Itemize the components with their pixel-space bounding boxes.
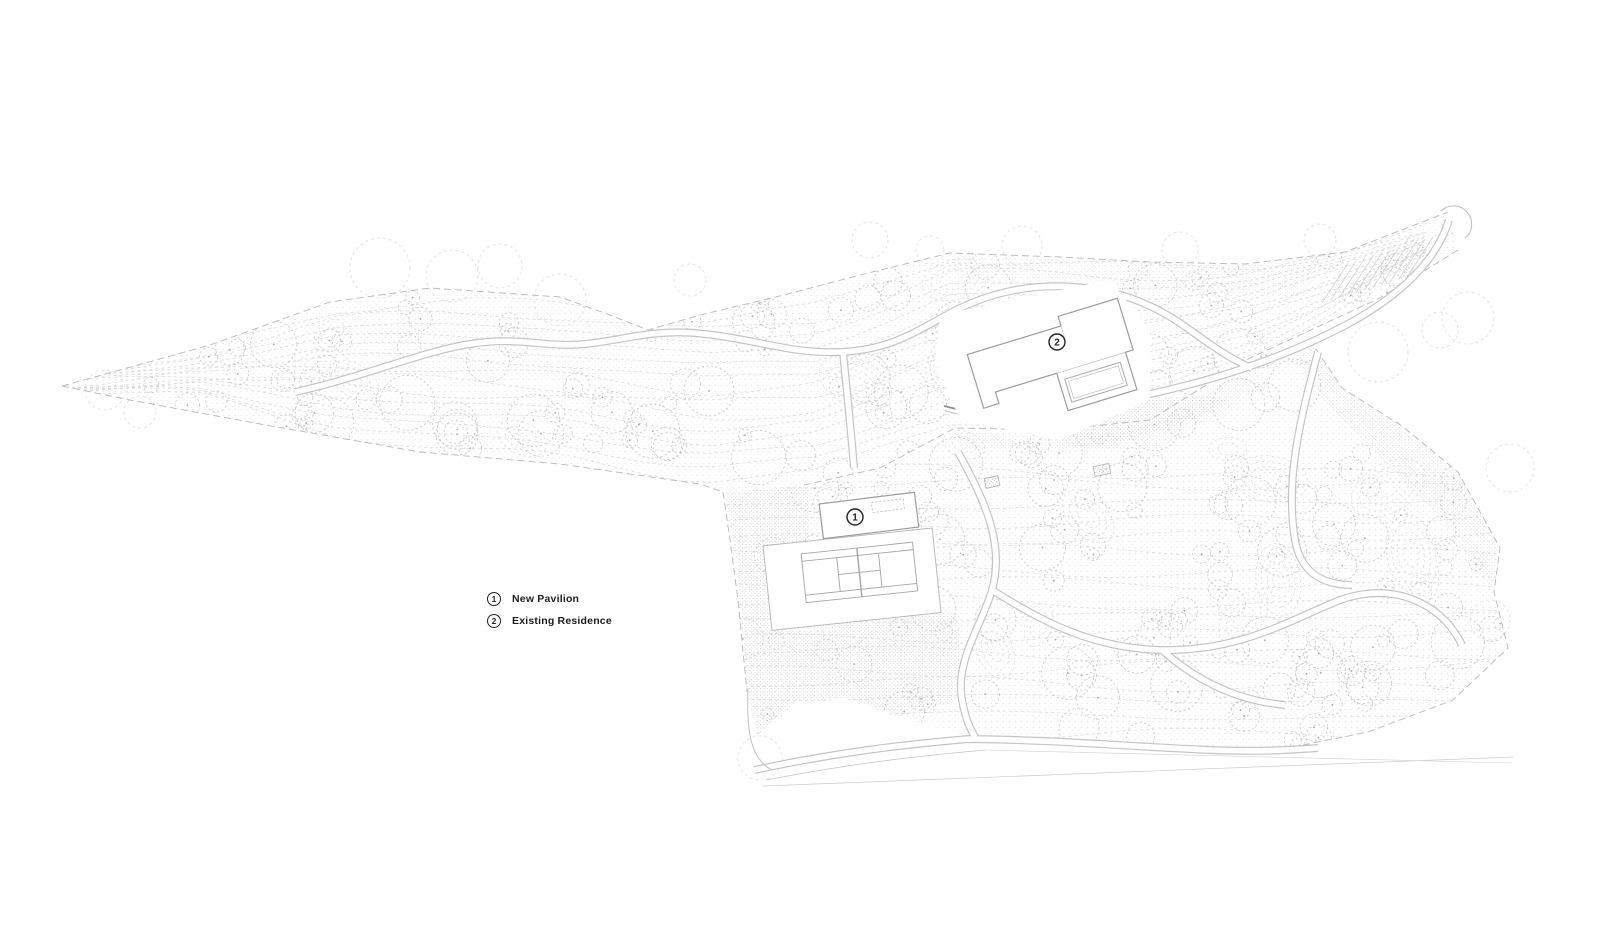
legend-label-new-pavilion: New Pavilion bbox=[512, 593, 579, 605]
legend: 1 New Pavilion 2 Existing Residence bbox=[487, 592, 612, 628]
legend-item-existing-residence: 2 Existing Residence bbox=[487, 614, 612, 628]
marker-new-pavilion: 1 bbox=[847, 509, 863, 525]
marker-1-number: 1 bbox=[852, 513, 858, 524]
legend-label-existing-residence: Existing Residence bbox=[512, 615, 612, 627]
tennis-court bbox=[763, 528, 941, 630]
legend-item-new-pavilion: 1 New Pavilion bbox=[487, 592, 612, 606]
marker-existing-residence: 2 bbox=[1049, 334, 1065, 350]
legend-badge-1: 1 bbox=[487, 592, 501, 606]
marker-2-number: 2 bbox=[1054, 338, 1060, 349]
legend-badge-2: 2 bbox=[487, 614, 501, 628]
site-plan-drawing: 1 2 bbox=[0, 0, 1600, 934]
site-plan-canvas: 1 2 1 New Pavilion 2 Existing Residence bbox=[0, 0, 1600, 934]
